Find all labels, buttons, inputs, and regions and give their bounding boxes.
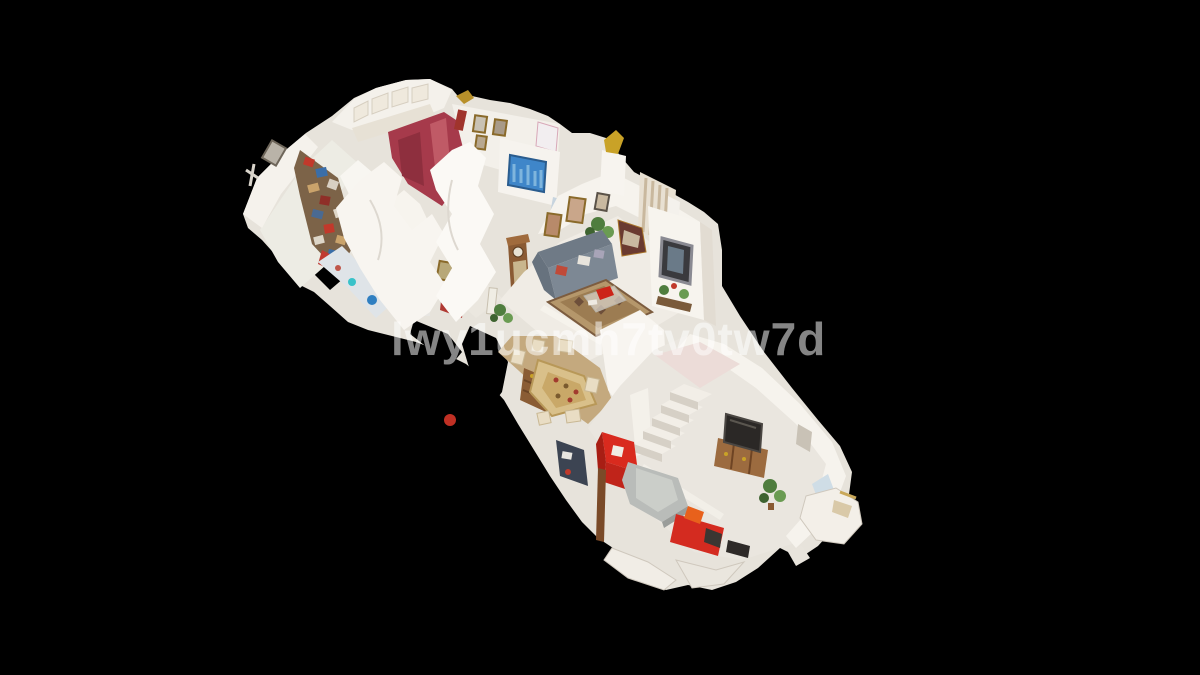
- framed-picture: [473, 115, 487, 133]
- framed-picture: [493, 119, 507, 136]
- teal-bin: [348, 278, 356, 286]
- framed-picture: [475, 135, 487, 149]
- console-plant: [679, 289, 689, 299]
- gold-statue: [604, 130, 624, 154]
- red-flowers: [671, 283, 677, 289]
- portrait-frame: [566, 197, 585, 223]
- console-plant: [659, 285, 669, 295]
- dollhouse-3d-view[interactable]: [0, 0, 1200, 675]
- portrait-frame: [545, 213, 562, 237]
- blue-bucket: [367, 295, 377, 305]
- small-item: [335, 265, 341, 271]
- statue-pedestal: [600, 150, 626, 196]
- red-cloth: [444, 414, 456, 426]
- framed-picture: [595, 193, 610, 211]
- tour-stage: lwy1ucmh7tv0tw7d: [0, 0, 1200, 675]
